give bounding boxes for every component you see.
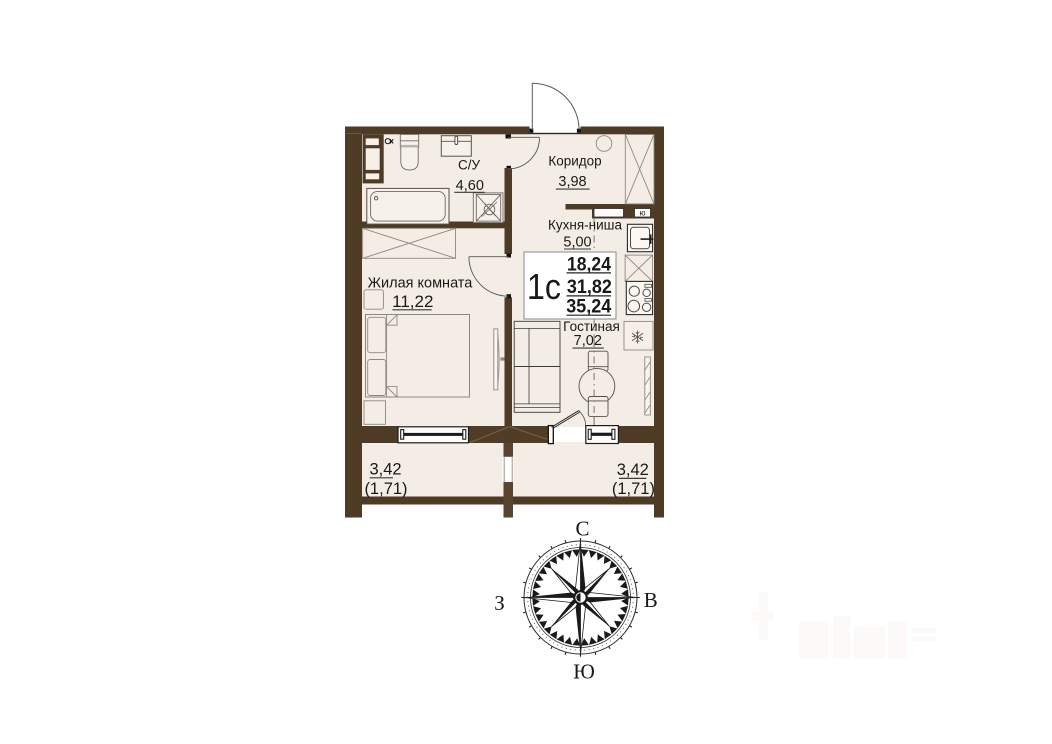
svg-text:3,42: 3,42: [369, 461, 401, 479]
svg-text:С: С: [575, 517, 589, 541]
svg-text:35,24: 35,24: [566, 296, 611, 318]
svg-text:ю: ю: [640, 209, 646, 218]
svg-text:(1,71): (1,71): [364, 480, 407, 498]
svg-text:Гостиная: Гостиная: [563, 319, 620, 334]
svg-text:3,42: 3,42: [617, 461, 649, 479]
svg-text:(1,71): (1,71): [612, 480, 655, 498]
svg-text:31,82: 31,82: [567, 276, 612, 298]
svg-text:11,22: 11,22: [392, 292, 433, 311]
svg-text:Жилая комната: Жилая комната: [368, 276, 474, 292]
svg-text:1с: 1с: [527, 266, 561, 307]
svg-text:3,98: 3,98: [558, 174, 586, 190]
svg-text:Ю: Ю: [573, 660, 595, 684]
svg-text:С/У: С/У: [458, 157, 481, 172]
svg-text:7,02: 7,02: [574, 333, 602, 349]
svg-text:В: В: [644, 588, 658, 612]
svg-text:5,00: 5,00: [563, 235, 591, 251]
svg-text:18,24: 18,24: [567, 253, 611, 275]
svg-text:З: З: [494, 591, 505, 615]
svg-text:Кухня-ниша: Кухня-ниша: [548, 218, 622, 233]
svg-text:Коридор: Коридор: [548, 154, 601, 169]
